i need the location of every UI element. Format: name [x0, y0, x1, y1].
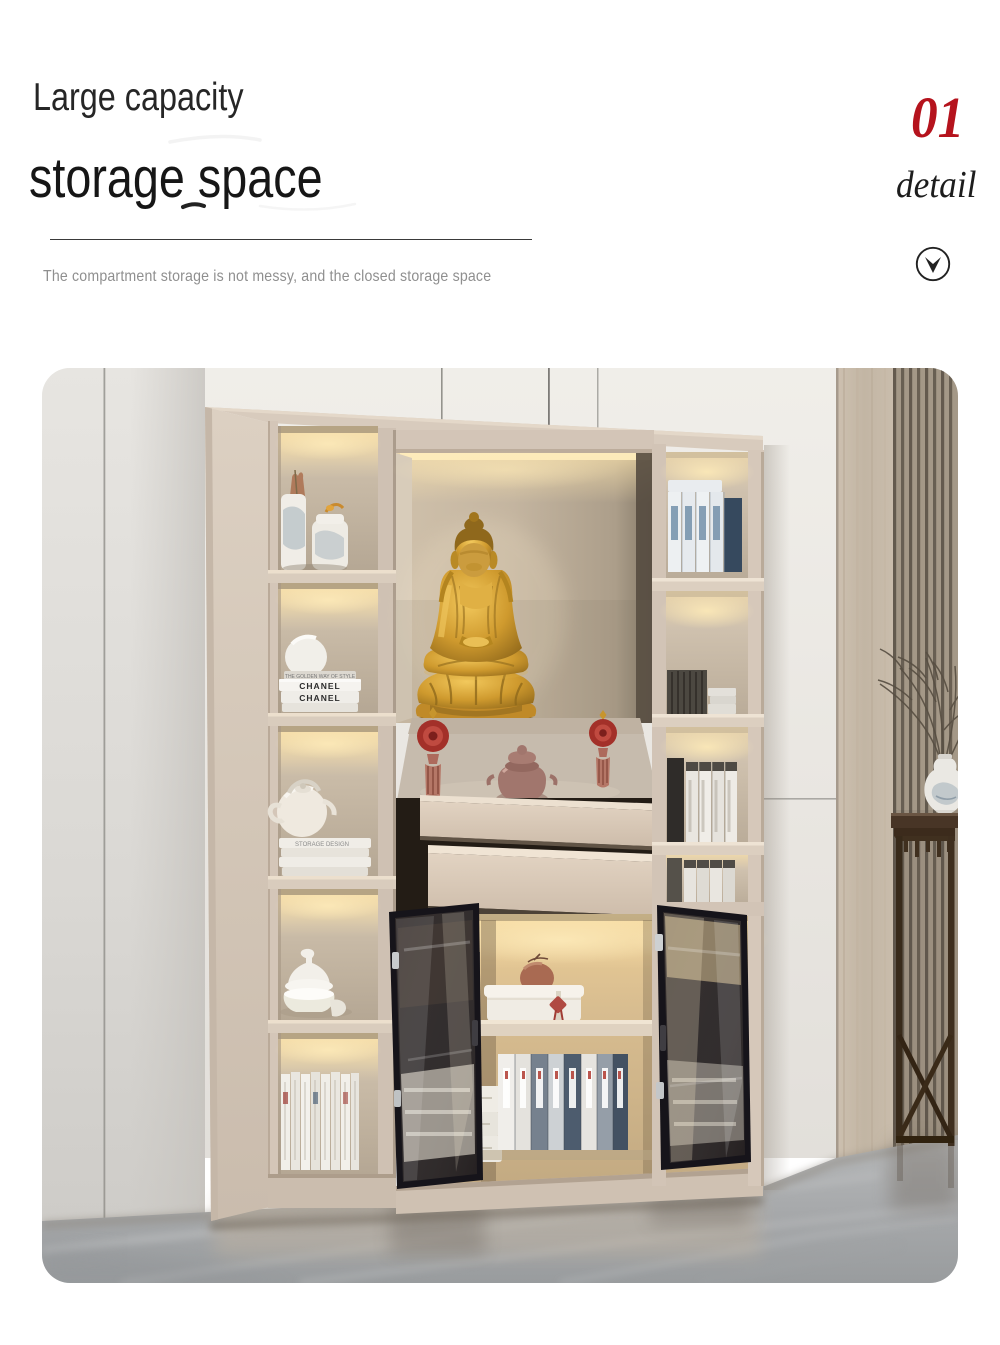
svg-text:CHANEL: CHANEL: [299, 693, 340, 703]
svg-text:STORAGE DESIGN: STORAGE DESIGN: [295, 842, 349, 848]
svg-text:CHANEL: CHANEL: [299, 681, 340, 691]
